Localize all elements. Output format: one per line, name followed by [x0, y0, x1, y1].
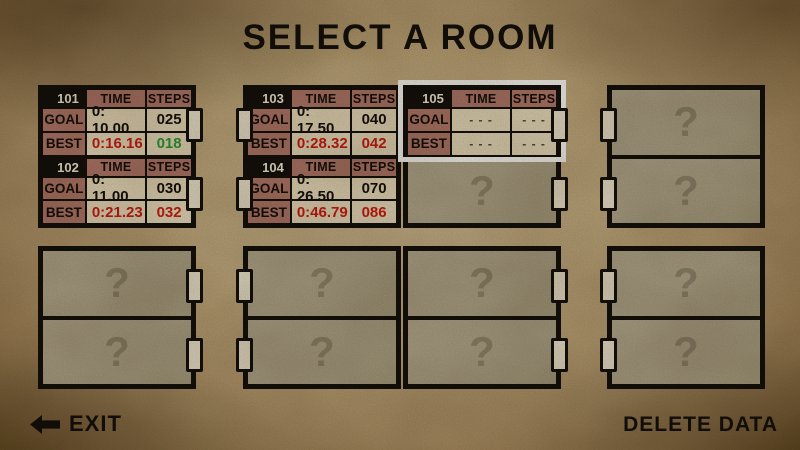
room-number: 101: [43, 90, 85, 107]
question-mark: ?: [673, 101, 699, 143]
question-mark: ?: [469, 170, 495, 212]
door-group-6: ? ?: [243, 246, 401, 389]
goal-time: 0: 11.00: [87, 178, 145, 200]
steps-header: STEPS: [512, 90, 556, 107]
room-102[interactable]: 102 TIME STEPS GOAL 0: 11.00 030 BEST 0:…: [43, 155, 191, 224]
question-mark: ?: [309, 262, 335, 304]
room-locked[interactable]: ?: [612, 155, 760, 224]
question-mark: ?: [673, 170, 699, 212]
room-number: 105: [408, 90, 450, 107]
door-group-5: ? ?: [38, 246, 196, 389]
best-label: BEST: [43, 201, 85, 223]
delete-data-button[interactable]: DELETE DATA: [623, 413, 778, 437]
room-locked[interactable]: ?: [408, 155, 556, 224]
door-handle-icon: [600, 269, 617, 303]
door-group-8: ? ?: [607, 246, 765, 389]
best-label: BEST: [43, 133, 85, 155]
door-group-7: ? ?: [403, 246, 561, 389]
goal-label: GOAL: [43, 178, 85, 200]
goal-steps: 040: [352, 109, 396, 131]
best-label: BEST: [408, 133, 450, 155]
question-mark: ?: [104, 331, 130, 373]
goal-label: GOAL: [408, 109, 450, 131]
door-group-1: 101 TIME STEPS GOAL 0: 10.00 025 BEST 0:…: [38, 85, 196, 228]
room-number: 103: [248, 90, 290, 107]
goal-steps: 070: [352, 178, 396, 200]
room-locked[interactable]: ?: [408, 316, 556, 385]
door-handle-icon: [600, 108, 617, 142]
best-steps: 086: [352, 201, 396, 223]
room-locked[interactable]: ?: [612, 90, 760, 155]
door-handle-icon: [551, 269, 568, 303]
question-mark: ?: [469, 262, 495, 304]
best-time: 0:21.23: [87, 201, 145, 223]
door-group-2: 103 TIME STEPS GOAL 0: 17.50 040 BEST 0:…: [243, 85, 401, 228]
best-steps: - - -: [512, 133, 556, 155]
back-arrow-icon: [30, 415, 60, 434]
page-title: SELECT A ROOM: [0, 18, 800, 58]
door-handle-icon: [186, 338, 203, 372]
best-steps: 018: [147, 133, 191, 155]
room-select-screen: SELECT A ROOM 101 TIME STEPS GOAL 0: 10.…: [0, 0, 800, 450]
room-locked[interactable]: ?: [612, 251, 760, 316]
best-label: BEST: [248, 201, 290, 223]
delete-data-label: DELETE DATA: [623, 413, 778, 437]
door-handle-icon: [236, 338, 253, 372]
door-handle-icon: [186, 177, 203, 211]
steps-header: STEPS: [147, 159, 191, 176]
room-locked[interactable]: ?: [43, 251, 191, 316]
room-locked[interactable]: ?: [408, 251, 556, 316]
best-time: 0:46.79: [292, 201, 350, 223]
room-locked[interactable]: ?: [248, 251, 396, 316]
question-mark: ?: [673, 331, 699, 373]
best-steps: 042: [352, 133, 396, 155]
door-handle-icon: [236, 269, 253, 303]
room-103[interactable]: 103 TIME STEPS GOAL 0: 17.50 040 BEST 0:…: [248, 90, 396, 155]
goal-label: GOAL: [248, 109, 290, 131]
room-101[interactable]: 101 TIME STEPS GOAL 0: 10.00 025 BEST 0:…: [43, 90, 191, 155]
goal-time: - - -: [452, 109, 510, 131]
door-handle-icon: [236, 177, 253, 211]
door-handle-icon: [186, 269, 203, 303]
door-group-3: 105 TIME STEPS GOAL - - - - - - BEST - -…: [403, 85, 561, 228]
best-steps: 032: [147, 201, 191, 223]
question-mark: ?: [309, 331, 335, 373]
goal-steps: - - -: [512, 109, 556, 131]
best-time: - - -: [452, 133, 510, 155]
best-time: 0:16.16: [87, 133, 145, 155]
question-mark: ?: [104, 262, 130, 304]
best-label: BEST: [248, 133, 290, 155]
exit-button[interactable]: EXIT: [30, 411, 122, 437]
room-locked[interactable]: ?: [248, 316, 396, 385]
door-handle-icon: [236, 108, 253, 142]
goal-steps: 025: [147, 109, 191, 131]
goal-label: GOAL: [248, 178, 290, 200]
room-104[interactable]: 104 TIME STEPS GOAL 0: 26.50 070 BEST 0:…: [248, 155, 396, 224]
steps-header: STEPS: [147, 90, 191, 107]
room-locked[interactable]: ?: [43, 316, 191, 385]
question-mark: ?: [469, 331, 495, 373]
door-handle-icon: [551, 177, 568, 211]
best-time: 0:28.32: [292, 133, 350, 155]
steps-header: STEPS: [352, 90, 396, 107]
goal-time: 0: 26.50: [292, 178, 350, 200]
room-number: 102: [43, 159, 85, 176]
door-handle-icon: [551, 108, 568, 142]
exit-label: EXIT: [69, 411, 122, 437]
time-header: TIME: [452, 90, 510, 107]
room-locked[interactable]: ?: [612, 316, 760, 385]
door-handle-icon: [551, 338, 568, 372]
goal-steps: 030: [147, 178, 191, 200]
door-handle-icon: [600, 177, 617, 211]
question-mark: ?: [673, 262, 699, 304]
goal-time: 0: 10.00: [87, 109, 145, 131]
room-number: 104: [248, 159, 290, 176]
goal-time: 0: 17.50: [292, 109, 350, 131]
goal-label: GOAL: [43, 109, 85, 131]
steps-header: STEPS: [352, 159, 396, 176]
door-group-4: ? ?: [607, 85, 765, 228]
room-105-selected[interactable]: 105 TIME STEPS GOAL - - - - - - BEST - -…: [408, 90, 556, 155]
door-handle-icon: [186, 108, 203, 142]
door-handle-icon: [600, 338, 617, 372]
